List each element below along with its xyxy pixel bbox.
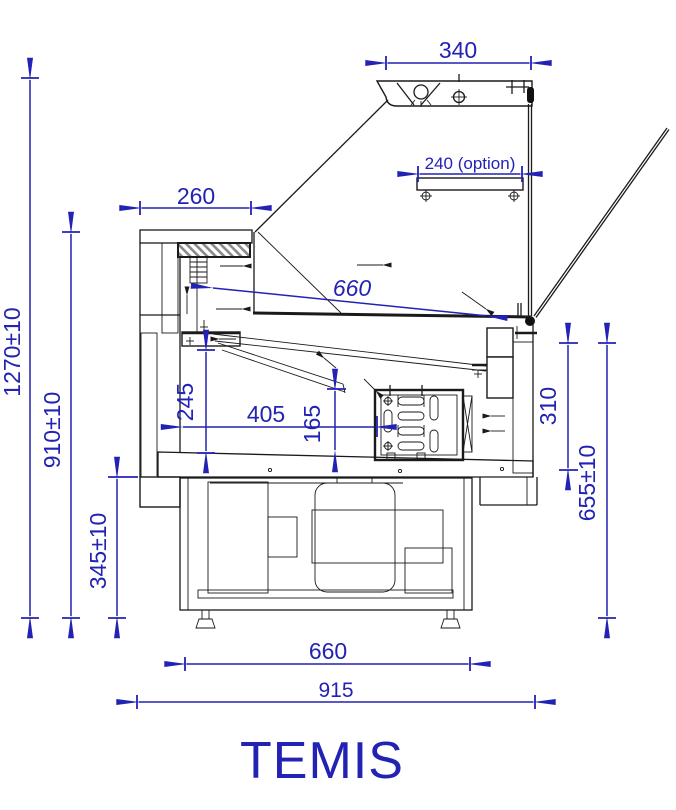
air-grille <box>190 257 207 283</box>
front-glass-open <box>534 128 669 318</box>
model-title: TEMIS <box>240 732 404 790</box>
dim-shelf-option-label: 240 (option) <box>425 154 516 173</box>
dim-evaporator-height-label: 165 <box>299 405 325 443</box>
compressor-unit <box>315 483 395 592</box>
dim-well-height-label: 245 <box>172 383 198 421</box>
dim-well-depth-label: 405 <box>247 401 285 427</box>
dim-base-depth-label: 660 <box>309 638 347 664</box>
coil-screw-icon <box>383 396 393 451</box>
front-glass-closed <box>518 104 532 318</box>
dim-display-depth-label: 660 <box>333 275 372 301</box>
foot-left <box>196 610 215 628</box>
counter-top <box>140 230 252 243</box>
wall-kick <box>140 477 180 507</box>
duct-panels <box>213 334 486 393</box>
temis-section-drawing: 1270±10 910±10 345±10 260 340 240 (optio… <box>0 0 676 810</box>
machine-base <box>180 478 472 628</box>
well-floor <box>158 452 533 477</box>
counter-insulation <box>178 243 250 257</box>
dim-overall-depth-label: 915 <box>318 679 353 702</box>
dim-canopy-width-label: 340 <box>439 37 477 63</box>
option-shelf <box>417 178 523 202</box>
dim-front-total-height-label: 655±10 <box>574 445 600 522</box>
inner-panel <box>258 232 341 313</box>
glass-hinge <box>515 316 537 339</box>
dim-front-glass-height-label: 310 <box>535 387 561 425</box>
dim-total-height-label: 1270±10 <box>0 307 25 396</box>
canopy <box>377 74 534 107</box>
back-panel <box>255 100 388 232</box>
deck-bracket-left <box>182 320 240 346</box>
dim-base-height-label: 345±10 <box>85 513 111 590</box>
condenser-unit <box>208 482 268 593</box>
dim-worktop-height-label: 910±10 <box>39 392 65 469</box>
dimensions: 1270±10 910±10 345±10 260 340 240 (optio… <box>0 37 616 709</box>
shelf-screw-icon <box>420 190 520 202</box>
display-deck <box>253 313 531 317</box>
drawing-sheet: 1270±10 910±10 345±10 260 340 240 (optio… <box>0 0 676 810</box>
coil-fins <box>398 395 424 450</box>
fan-plate <box>463 396 472 452</box>
evaporator <box>375 385 472 460</box>
dim-counter-depth-label: 260 <box>177 183 215 209</box>
foot-right <box>441 610 460 628</box>
case-geometry <box>140 74 669 628</box>
left-wall <box>140 243 240 507</box>
